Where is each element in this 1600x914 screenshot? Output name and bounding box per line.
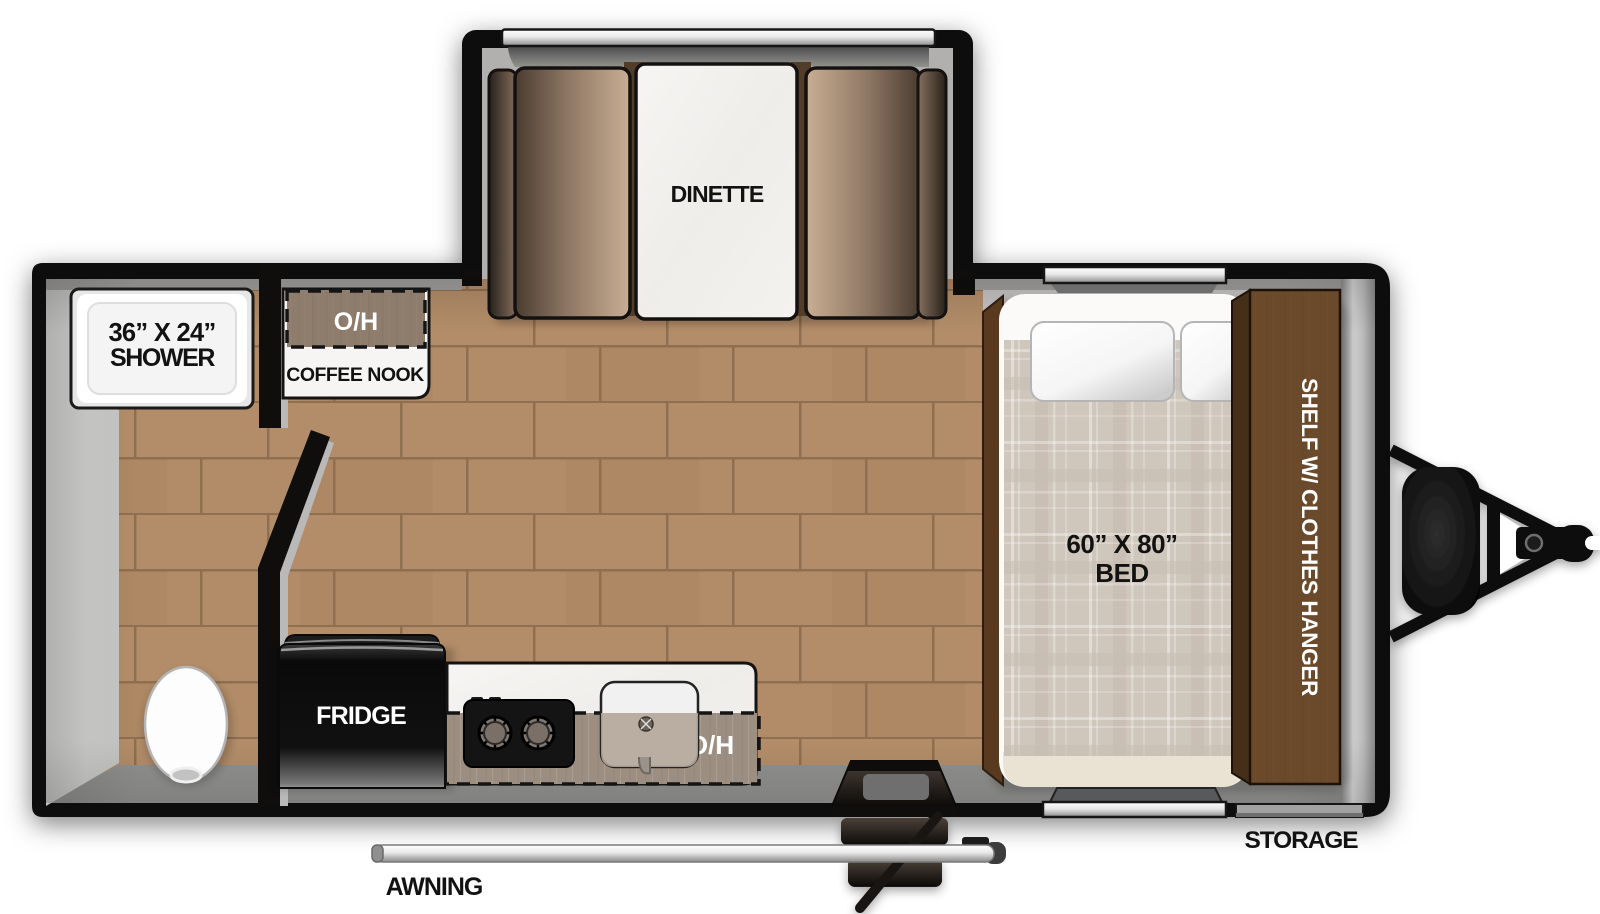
svg-text:SHOWER: SHOWER: [110, 344, 215, 372]
svg-text:BED: BED: [1095, 558, 1148, 588]
svg-text:STORAGE: STORAGE: [1244, 827, 1358, 854]
svg-text:FRIDGE: FRIDGE: [316, 702, 406, 730]
svg-text:COFFEE NOOK: COFFEE NOOK: [286, 364, 424, 386]
svg-text:DINETTE: DINETTE: [671, 181, 764, 207]
svg-text:AWNING: AWNING: [386, 873, 483, 901]
svg-text:O/H: O/H: [334, 308, 378, 336]
svg-text:60” X 80”: 60” X 80”: [1066, 529, 1177, 559]
svg-text:36” X 24”: 36” X 24”: [108, 319, 215, 347]
svg-text:SHELF W/ CLOTHES HANGER: SHELF W/ CLOTHES HANGER: [1297, 378, 1322, 696]
